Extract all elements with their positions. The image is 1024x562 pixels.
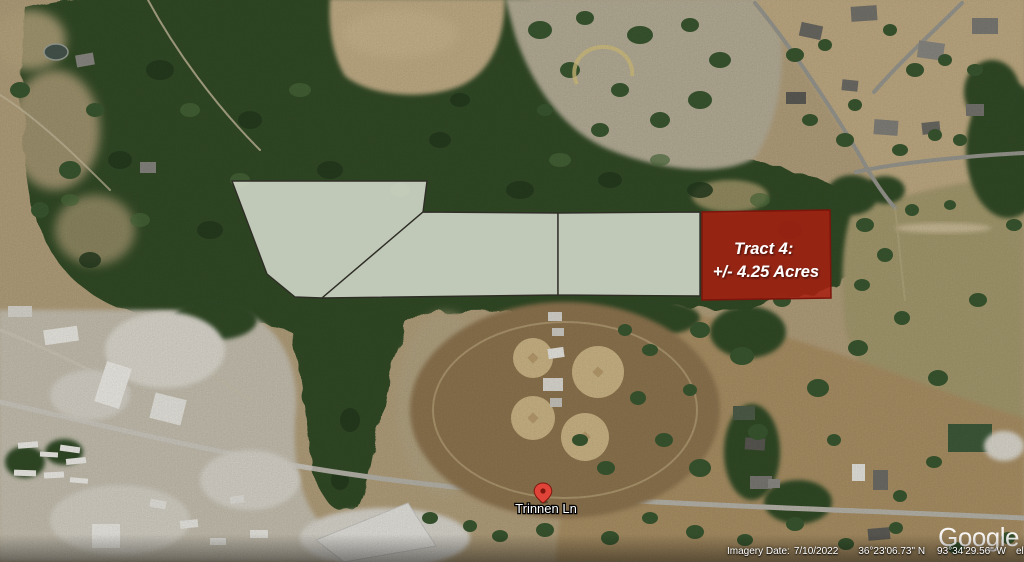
elevation-label: elev — [1016, 546, 1024, 557]
tract-4-label-line1: Tract 4: — [734, 240, 793, 258]
tract-4-label-line2: +/- 4.25 Acres — [713, 263, 819, 281]
imagery-date-value: 7/10/2022 — [794, 546, 839, 557]
satellite-imagery: Tract 4: +/- 4.25 Acres Trinnen Ln Googl… — [0, 0, 1024, 562]
latitude-value: 36°23'06.73" N — [858, 546, 925, 557]
satellite-map-viewport[interactable]: Tract 4: +/- 4.25 Acres Trinnen Ln Googl… — [0, 0, 1024, 562]
road-label: Trinnen Ln — [515, 501, 577, 516]
imagery-date-label: Imagery Date: — [727, 546, 790, 557]
tract-3-overlay — [558, 212, 700, 296]
status-bar: Imagery Date:7/10/202236°23'06.73" N93°3… — [727, 546, 1024, 557]
longitude-value: 93°34'29.56" W — [937, 546, 1006, 557]
